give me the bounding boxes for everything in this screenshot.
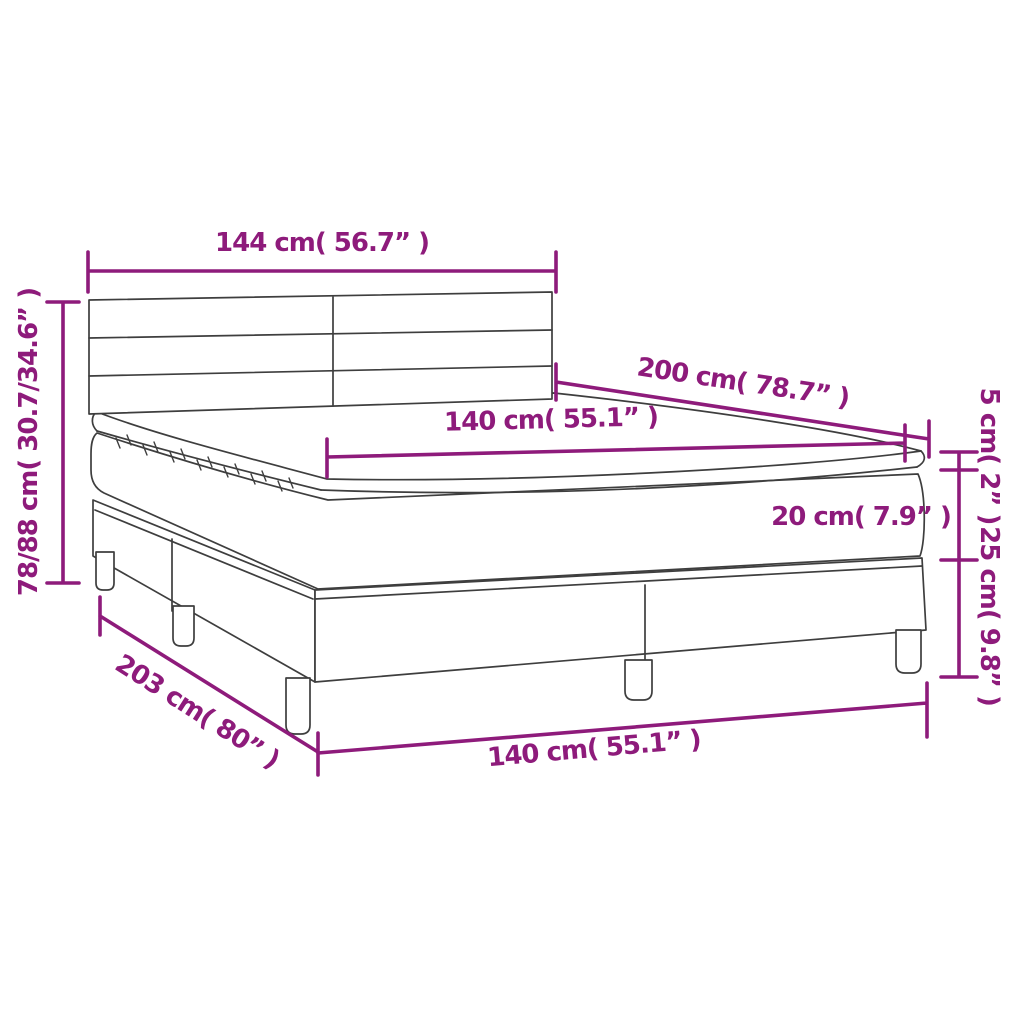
bed-leg xyxy=(96,552,114,590)
dim-line-thickness-stack xyxy=(941,452,977,677)
dim-line-headboard-width xyxy=(88,252,556,292)
dim-label-topper-thickness: 5 cm( 2” ) xyxy=(974,388,1004,525)
headboard xyxy=(89,292,552,414)
bed-leg xyxy=(286,678,310,734)
dim-label-mattress-thickness: 20 cm( 7.9” ) xyxy=(771,502,951,532)
dim-label-sleeping-width-top: 140 cm( 55.1” ) xyxy=(444,402,659,438)
dimension-diagram: 144 cm( 56.7” ) 78/88 cm( 30.7/34.6” ) 2… xyxy=(0,0,1024,1024)
bed-leg xyxy=(625,660,652,700)
dim-line-bed-height xyxy=(47,302,79,583)
bed-leg xyxy=(173,606,194,646)
dim-label-headboard-width: 144 cm( 56.7” ) xyxy=(215,228,429,258)
dim-label-base-height: 25 cm( 9.8” ) xyxy=(974,526,1004,706)
bed-leg xyxy=(896,630,921,673)
dim-label-bed-height: 78/88 cm( 30.7/34.6” ) xyxy=(14,288,44,596)
